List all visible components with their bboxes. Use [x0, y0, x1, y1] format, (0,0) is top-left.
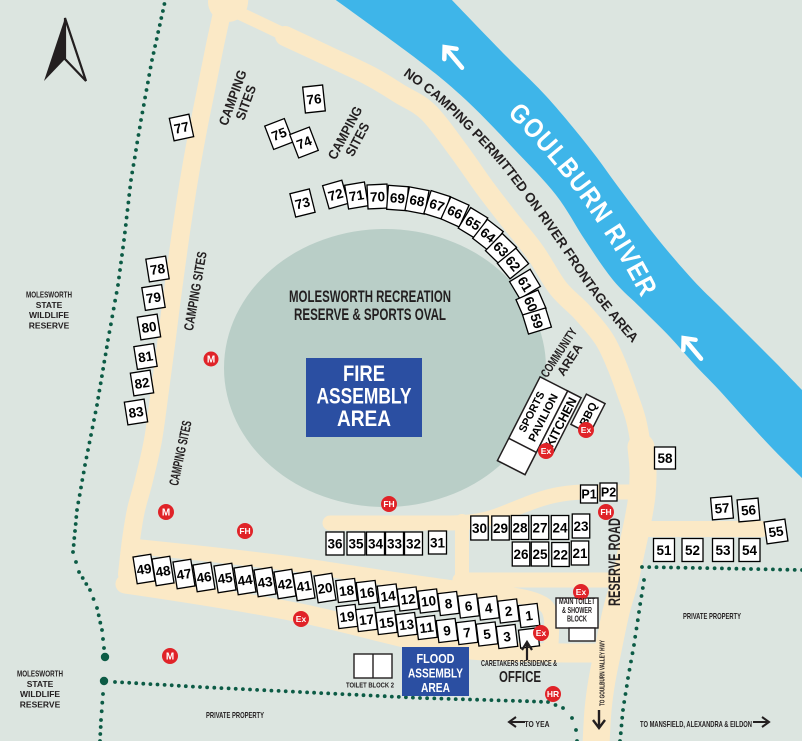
svg-text:FH: FH: [383, 499, 394, 509]
svg-text:42: 42: [276, 576, 293, 593]
svg-text:28: 28: [512, 520, 528, 535]
svg-text:19: 19: [339, 608, 356, 625]
svg-text:TO YEA: TO YEA: [525, 719, 550, 729]
svg-text:45: 45: [216, 570, 234, 587]
svg-text:51: 51: [656, 543, 672, 558]
svg-text:17: 17: [358, 611, 375, 628]
svg-text:70: 70: [370, 189, 386, 205]
svg-text:57: 57: [714, 500, 730, 516]
svg-text:82: 82: [133, 375, 150, 392]
svg-text:FH: FH: [239, 526, 250, 536]
svg-text:24: 24: [552, 520, 568, 535]
svg-text:Ex: Ex: [541, 446, 552, 456]
svg-text:44: 44: [236, 572, 254, 589]
svg-text:PRIVATE PROPERTY: PRIVATE PROPERTY: [683, 611, 741, 621]
svg-text:20: 20: [316, 580, 333, 597]
svg-text:76: 76: [306, 91, 323, 108]
svg-text:29: 29: [493, 521, 508, 536]
svg-text:TO GOULBURN VALLEY HWY: TO GOULBURN VALLEY HWY: [598, 640, 607, 706]
svg-text:33: 33: [387, 536, 403, 551]
svg-text:80: 80: [140, 319, 157, 336]
svg-text:81: 81: [137, 348, 155, 365]
svg-text:ASSEMBLY: ASSEMBLY: [408, 666, 463, 681]
svg-text:56: 56: [740, 502, 757, 518]
svg-text:49: 49: [135, 561, 152, 578]
svg-text:FLOOD: FLOOD: [417, 651, 455, 666]
svg-text:M: M: [207, 355, 215, 366]
svg-text:22: 22: [553, 547, 568, 562]
svg-text:11: 11: [419, 619, 435, 636]
svg-text:RESERVE ROAD: RESERVE ROAD: [605, 518, 624, 606]
svg-text:Ex: Ex: [581, 425, 592, 435]
svg-text:P1: P1: [581, 488, 596, 502]
svg-text:Ex: Ex: [536, 628, 547, 638]
svg-text:46: 46: [195, 569, 213, 586]
svg-text:FH: FH: [600, 507, 611, 517]
svg-text:12: 12: [400, 591, 417, 608]
svg-text:M: M: [166, 652, 174, 663]
svg-text:Ex: Ex: [576, 587, 587, 597]
svg-text:43: 43: [256, 574, 274, 591]
svg-text:MOLESWORTHSTATEWILDLIFERESERVE: MOLESWORTHSTATEWILDLIFERESERVE: [26, 290, 72, 331]
svg-text:14: 14: [380, 588, 397, 605]
svg-text:RESERVE & SPORTS OVAL: RESERVE & SPORTS OVAL: [294, 306, 446, 324]
svg-text:27: 27: [532, 520, 547, 535]
svg-text:53: 53: [715, 543, 731, 558]
svg-text:TO MANSFIELD, ALEXANDRA & EILD: TO MANSFIELD, ALEXANDRA & EILDON: [640, 719, 752, 729]
svg-text:26: 26: [513, 547, 529, 562]
svg-text:AREA: AREA: [421, 680, 450, 695]
svg-text:31: 31: [430, 535, 446, 550]
svg-text:ASSEMBLY: ASSEMBLY: [317, 384, 412, 409]
svg-text:10: 10: [420, 593, 437, 610]
svg-text:52: 52: [685, 543, 700, 558]
svg-text:TOILET BLOCK 2: TOILET BLOCK 2: [346, 681, 394, 690]
svg-text:58: 58: [657, 451, 673, 466]
svg-text:32: 32: [406, 536, 421, 551]
svg-text:AREA: AREA: [337, 406, 391, 431]
svg-text:PRIVATE PROPERTY: PRIVATE PROPERTY: [206, 710, 264, 720]
svg-text:47: 47: [175, 566, 192, 583]
svg-text:18: 18: [338, 582, 355, 599]
svg-text:79: 79: [145, 289, 162, 306]
svg-text:30: 30: [472, 521, 487, 536]
svg-text:OFFICE: OFFICE: [499, 669, 541, 686]
svg-text:23: 23: [573, 519, 589, 534]
svg-text:71: 71: [348, 187, 366, 204]
svg-text:35: 35: [348, 536, 364, 551]
svg-text:78: 78: [149, 261, 167, 278]
svg-text:41: 41: [295, 578, 313, 595]
svg-text:48: 48: [154, 563, 172, 580]
svg-text:25: 25: [532, 547, 548, 562]
svg-text:34: 34: [368, 536, 384, 551]
svg-text:21: 21: [572, 546, 588, 561]
svg-text:36: 36: [327, 536, 343, 551]
svg-text:54: 54: [742, 543, 758, 558]
svg-text:M: M: [162, 508, 170, 519]
svg-text:83: 83: [127, 404, 145, 421]
svg-text:P2: P2: [601, 486, 616, 500]
svg-text:69: 69: [389, 190, 405, 206]
svg-text:Ex: Ex: [296, 614, 307, 624]
svg-text:HR: HR: [547, 689, 559, 699]
svg-text:15: 15: [378, 614, 395, 631]
svg-text:MOLESWORTHSTATEWILDLIFERESERVE: MOLESWORTHSTATEWILDLIFERESERVE: [17, 669, 63, 710]
svg-text:77: 77: [173, 119, 191, 137]
svg-text:CARETAKERS RESIDENCE &: CARETAKERS RESIDENCE &: [481, 659, 557, 668]
svg-text:16: 16: [359, 584, 376, 601]
svg-text:FIRE: FIRE: [343, 361, 385, 386]
svg-text:MOLESWORTH RECREATION: MOLESWORTH RECREATION: [289, 288, 451, 306]
svg-text:55: 55: [768, 523, 785, 540]
svg-text:13: 13: [398, 616, 415, 633]
